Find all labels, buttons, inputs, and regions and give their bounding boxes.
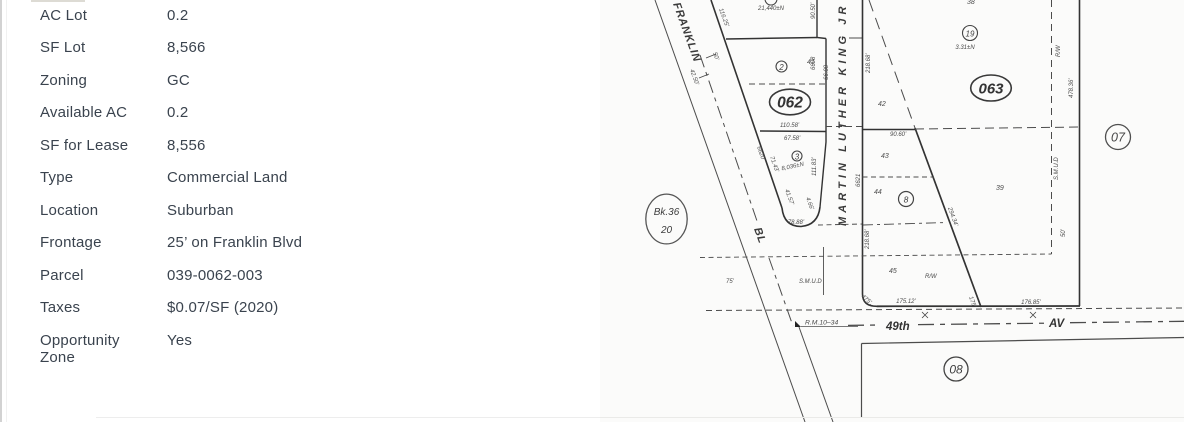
svg-text:19: 19 (966, 30, 975, 39)
svg-text:R/W: R/W (1056, 44, 1062, 57)
svg-text:218.68’: 218.68’ (866, 53, 872, 74)
svg-text:45: 45 (889, 268, 897, 275)
svg-text:49th: 49th (885, 321, 910, 333)
svg-text:110.58’: 110.58’ (780, 123, 800, 129)
svg-text:R/W: R/W (925, 274, 938, 280)
svg-text:75’: 75’ (726, 279, 735, 285)
svg-text:R.M.10–34: R.M.10–34 (805, 320, 838, 327)
svg-text:07: 07 (1111, 131, 1126, 145)
svg-text:66.08: 66.08 (824, 64, 830, 80)
svg-text:42: 42 (878, 101, 886, 108)
svg-text:90.60’: 90.60’ (890, 132, 907, 138)
svg-text:21,440±N: 21,440±N (757, 6, 785, 12)
svg-text:2: 2 (778, 63, 784, 72)
svg-text:175.12’: 175.12’ (896, 299, 916, 305)
svg-text:111.83’: 111.83’ (812, 157, 818, 176)
svg-text:176.85’: 176.85’ (1021, 300, 1041, 306)
svg-text:44: 44 (874, 189, 882, 196)
svg-text:AV: AV (1048, 318, 1065, 330)
svg-text:38: 38 (967, 0, 975, 6)
svg-text:43: 43 (881, 153, 889, 160)
svg-text:8: 8 (904, 195, 909, 205)
svg-text:6621: 6621 (856, 174, 862, 187)
svg-text:S.M.U.D: S.M.U.D (1054, 157, 1060, 180)
svg-text:063: 063 (978, 81, 1004, 98)
svg-text:3: 3 (795, 153, 800, 162)
svg-text:50’: 50’ (1061, 228, 1067, 237)
svg-text:478.36’: 478.36’ (1069, 78, 1075, 98)
svg-text:90.50’: 90.50’ (811, 2, 817, 19)
svg-text:20: 20 (660, 225, 673, 236)
svg-text:39: 39 (996, 185, 1004, 192)
svg-text:MARTIN LUTHER KING JR: MARTIN LUTHER KING JR (837, 5, 849, 226)
svg-text:3.31±N: 3.31±N (955, 45, 975, 51)
svg-text:6608: 6608 (811, 56, 817, 70)
svg-text:Bk.36: Bk.36 (654, 207, 680, 218)
svg-text:S.M.U.D: S.M.U.D (799, 279, 822, 285)
svg-text:78.88’: 78.88’ (788, 220, 805, 226)
svg-text:67.58’: 67.58’ (784, 136, 801, 142)
svg-text:218.68’: 218.68’ (865, 229, 871, 250)
svg-text:08: 08 (949, 363, 963, 377)
svg-text:062: 062 (777, 95, 803, 112)
